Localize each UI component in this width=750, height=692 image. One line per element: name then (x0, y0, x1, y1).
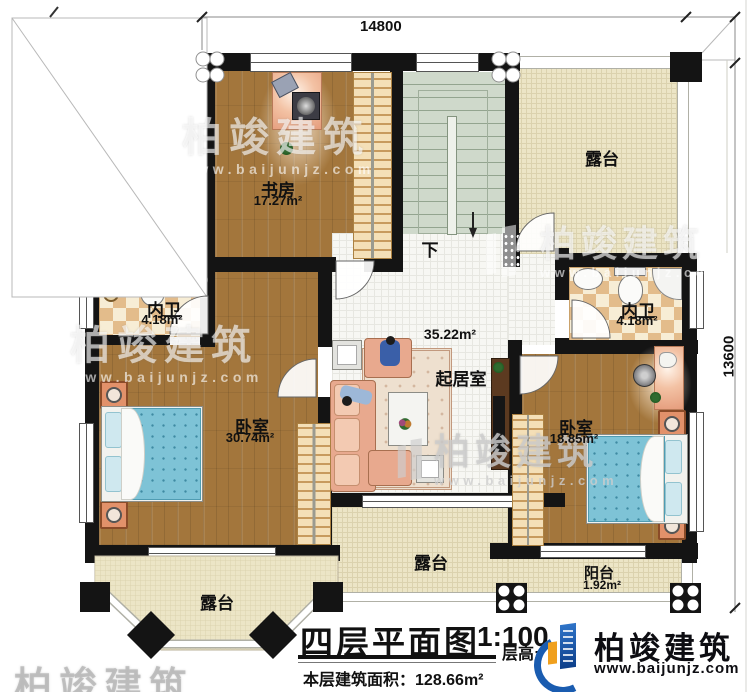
bed-right-blanket (640, 436, 664, 522)
wall-stair-right (505, 53, 519, 233)
wall-bath-left-bottom (85, 335, 170, 345)
person-head-sitting (386, 336, 395, 345)
wall-bath-right-top (565, 253, 695, 267)
bed-left-pillow-1 (105, 412, 122, 448)
living-area: 35.22m² (424, 326, 476, 342)
bedroom-right-wardrobe (512, 414, 544, 546)
study-area: 17.27m² (254, 193, 302, 208)
bedroom-left-terrace-door (148, 547, 276, 560)
study-wardrobe (353, 72, 392, 259)
dresser-stool (633, 364, 656, 387)
sink-right (573, 268, 603, 290)
wall-study-left (200, 53, 215, 268)
terrace-bottom-center-label: 露台 (414, 549, 448, 574)
bath-right-area: 4.18m² (616, 313, 657, 328)
watermark-logo-icon (126, 118, 168, 170)
bedroom-left-wardrobe (297, 423, 331, 545)
balcony-bottom-railing (332, 592, 690, 602)
dimension-top: 14800 (360, 18, 402, 35)
dresser-lamp (659, 352, 677, 368)
watermark-logo-icon (16, 326, 58, 378)
computer-monitor (292, 92, 320, 120)
wall-study-bath (200, 255, 215, 347)
armchair-bottom (368, 450, 412, 486)
table-flowers (398, 418, 412, 430)
dimension-right: 13600 (720, 336, 737, 378)
bath-left-window (79, 271, 94, 329)
floor-area-value: 128.66m² (415, 672, 484, 689)
bed-right-pillow-1 (665, 440, 682, 474)
wall-bath-left-top (85, 253, 215, 268)
side-table-bottom2 (416, 455, 444, 483)
wall-bath-right-left-a (555, 248, 569, 300)
person-head-lying (342, 396, 352, 406)
bed-right-pillow-2 (665, 482, 682, 516)
stair-center-rail (447, 116, 457, 235)
terrace-top-right-label: 露台 (585, 145, 619, 170)
brand-logo-icon (534, 622, 590, 684)
floor-area-label: 本层建筑面积： (303, 672, 415, 689)
sofa-cushion-2 (334, 418, 360, 452)
sink-left (176, 269, 208, 291)
bedroom-right-area: 18.85m² (550, 431, 598, 446)
bedroom-left-window (79, 423, 94, 523)
watermark-bottom-left: 柏竣建筑 (14, 668, 194, 692)
brand-website: www.baijunjz.com (594, 660, 739, 677)
bath-right-window (689, 271, 704, 329)
bedroom-right-balcony-door (540, 545, 646, 558)
stair-window (416, 53, 479, 72)
bedroom-right-plant (650, 392, 661, 403)
bedroom-left-area: 30.74m² (226, 430, 274, 445)
study-plant (280, 142, 293, 155)
terrace-right-railing (677, 56, 689, 256)
wall-bedroom-left-hall-a (318, 257, 332, 347)
stairs-down-label: 下 (422, 236, 439, 261)
tv-screen (493, 396, 505, 452)
terrace-bottom-left-label: 露台 (200, 589, 234, 614)
title-underline-thin (298, 662, 496, 663)
floor-area-text: 本层建筑面积：128.66m² (303, 666, 484, 690)
shower-head-left (103, 286, 119, 302)
stair-corner-column (503, 233, 520, 267)
floor-plan-canvas: 柏竣建筑 www.baijunjz.com 柏竣建筑 www.baijunjz.… (0, 0, 750, 692)
bedroom-right-window (689, 412, 704, 532)
living-label: 起居室 (436, 365, 487, 390)
bath-left-area: 4.18m² (141, 312, 182, 327)
terrace-top-railing (516, 56, 680, 69)
tv-plant (493, 362, 504, 373)
side-table-top (332, 340, 362, 370)
balcony-right-railing (681, 557, 693, 602)
watermark-brand-text: 柏竣建筑 (14, 668, 194, 692)
wall-study-bottom2 (364, 257, 403, 272)
nightstand-left-top (100, 381, 128, 409)
sofa-cushion-3 (334, 454, 360, 486)
bed-left-pillow-2 (105, 456, 122, 492)
nightstand-left-bottom (100, 501, 128, 529)
balcony-area: 1.92m² (583, 578, 621, 592)
title-underline-thick (298, 655, 496, 659)
wall-bath-right-left-b (555, 338, 569, 354)
wall-top-2 (348, 53, 418, 71)
